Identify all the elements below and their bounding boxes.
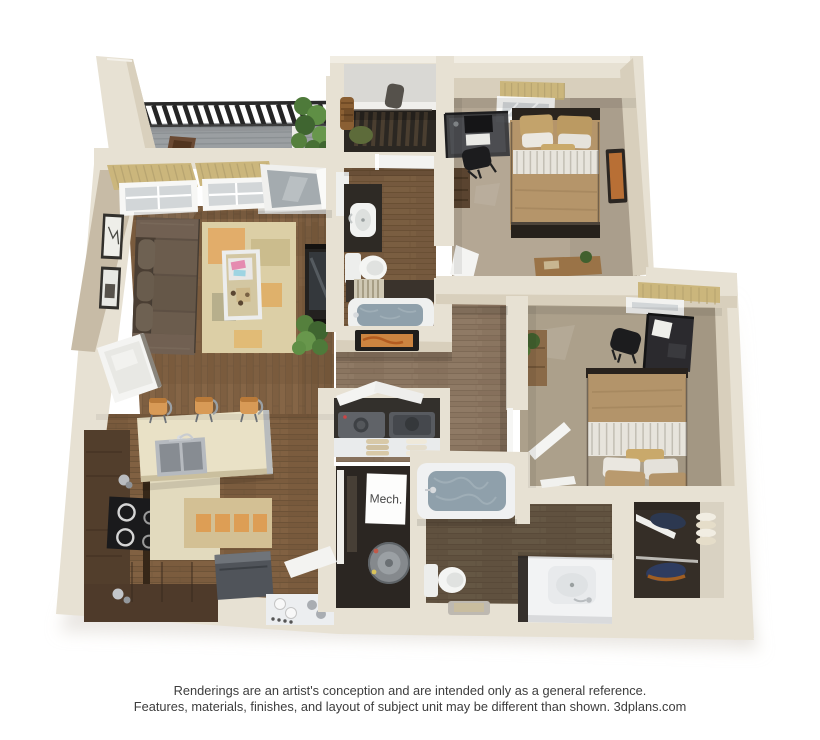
svg-text:Renderings are an artist's con: Renderings are an artist's conception an…	[174, 683, 647, 698]
svg-text:Features, materials, finishes,: Features, materials, finishes, and layou…	[134, 699, 686, 714]
svg-text:Mech.: Mech.	[369, 491, 402, 506]
